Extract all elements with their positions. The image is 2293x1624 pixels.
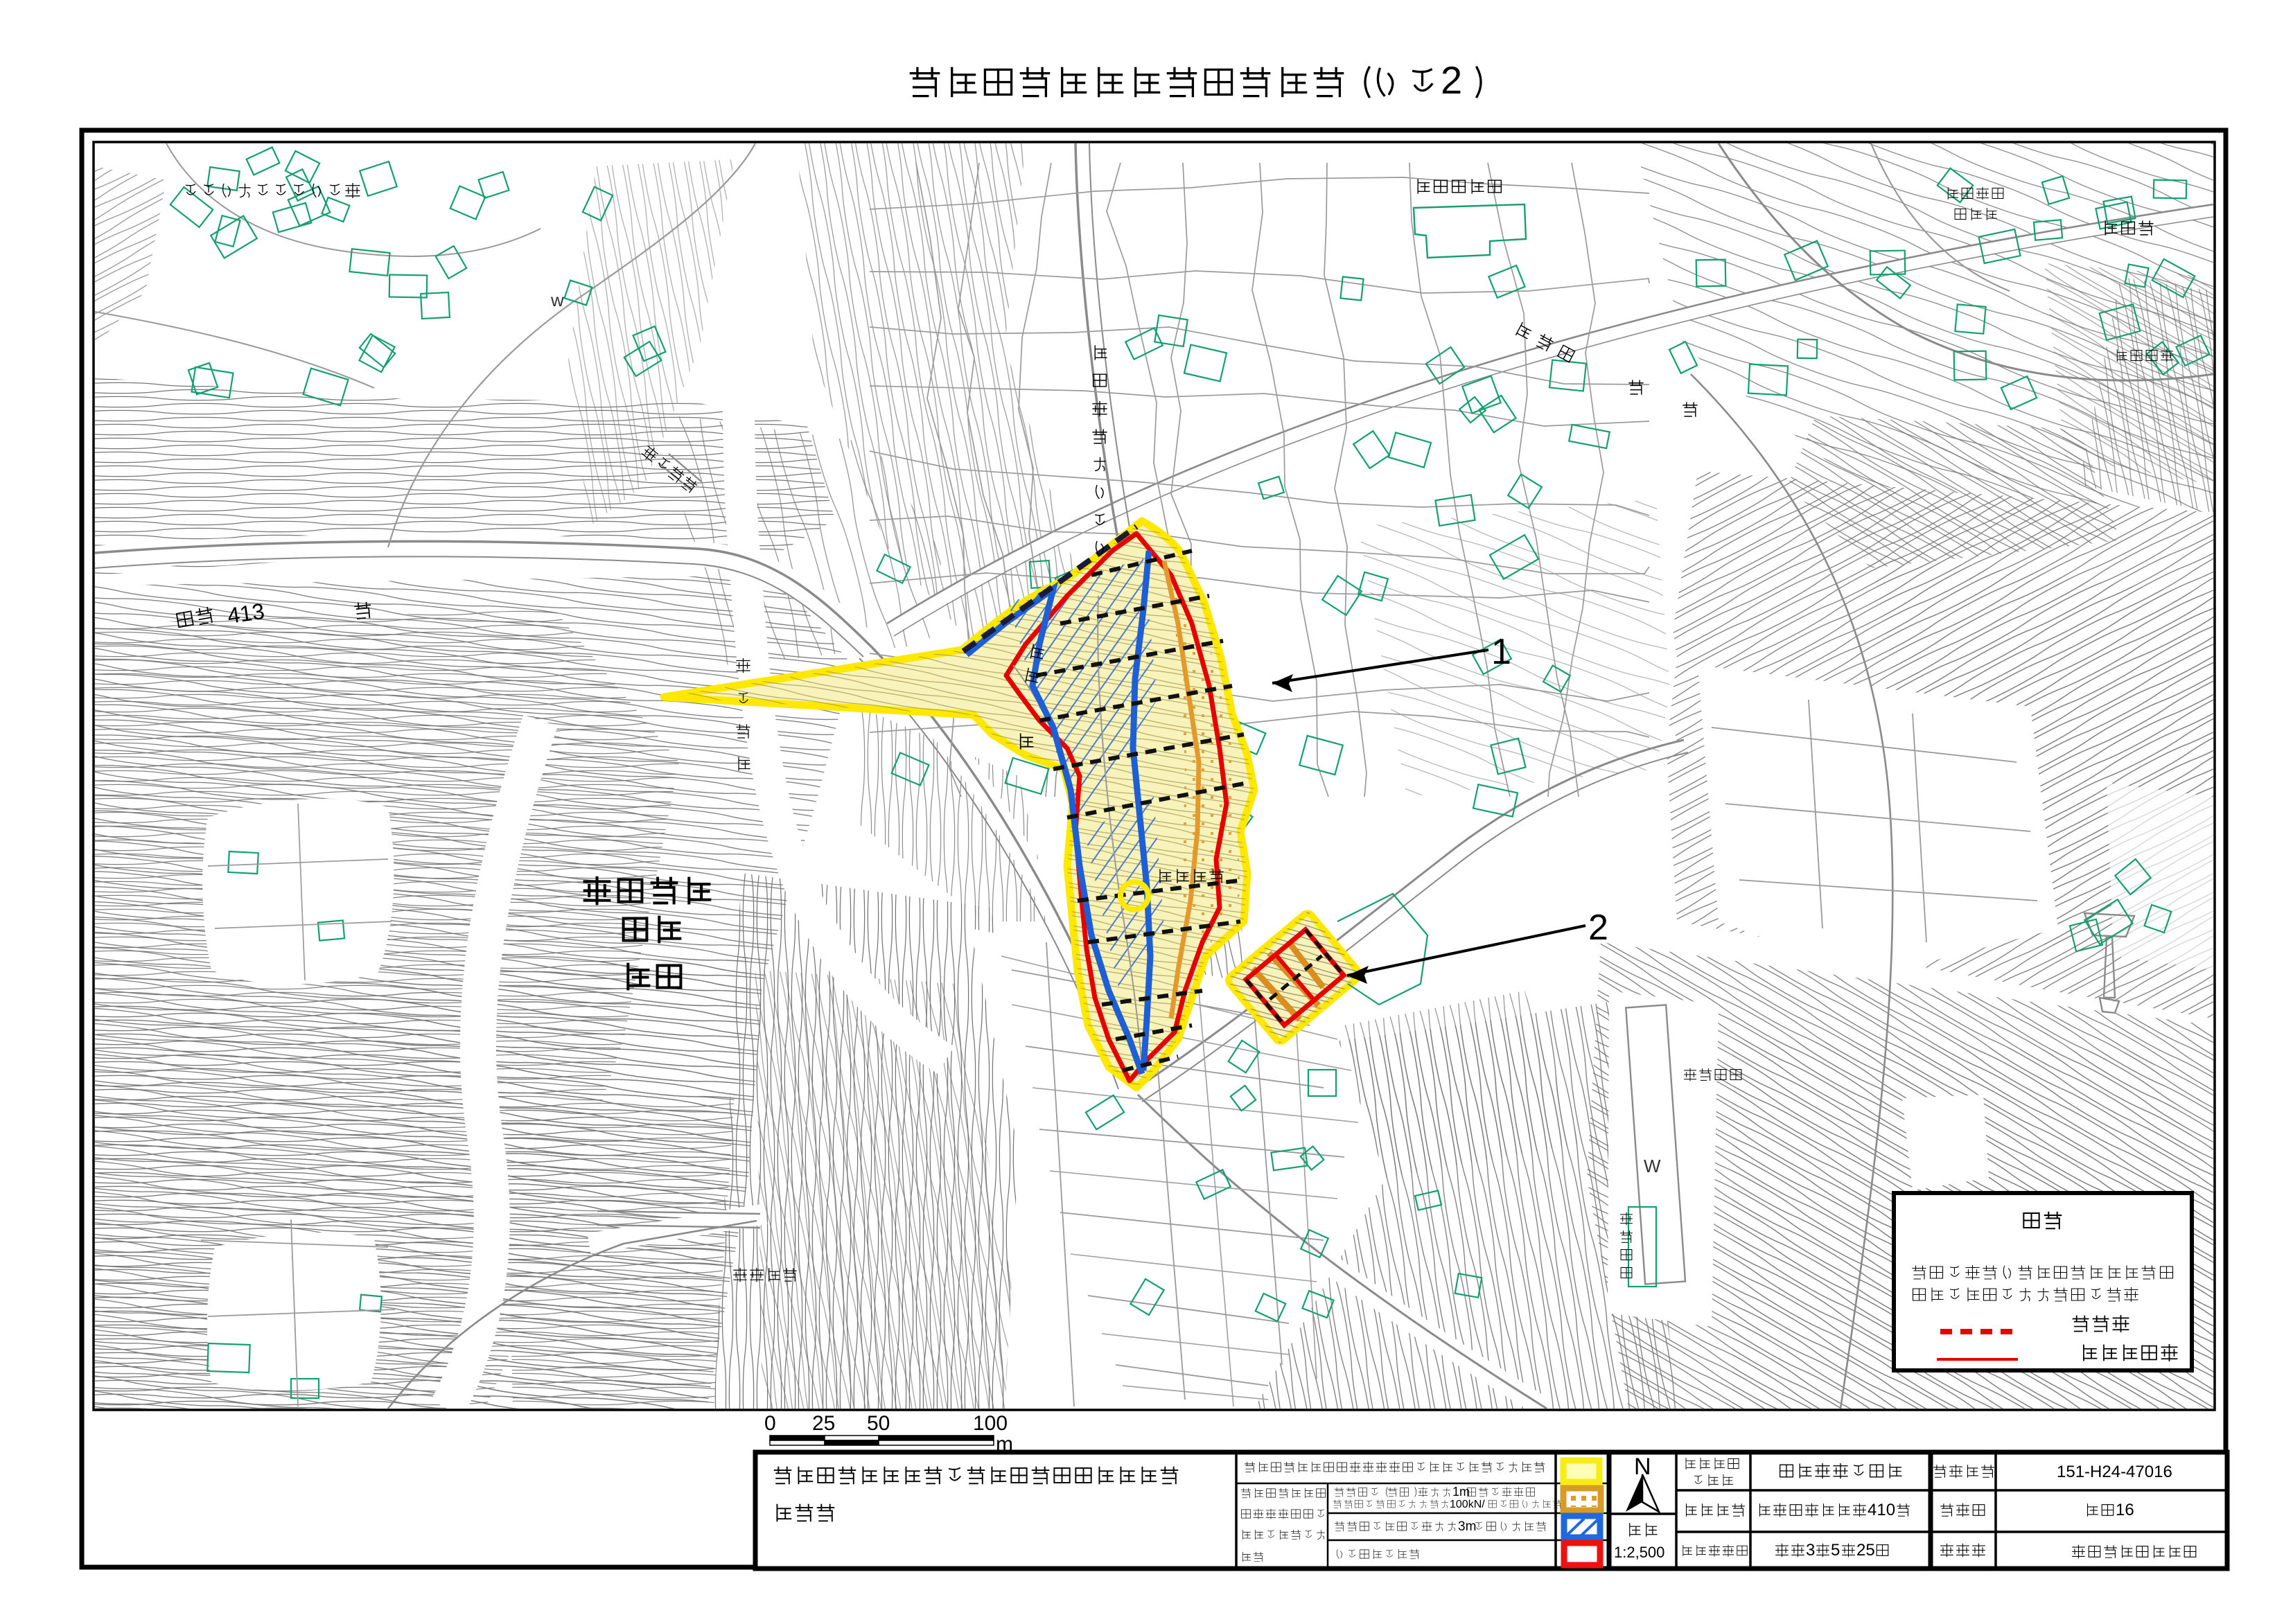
- svg-text:w: w: [550, 290, 564, 310]
- svg-text:0: 0: [764, 1412, 776, 1435]
- svg-text:2: 2: [1441, 58, 1462, 102]
- svg-text:100: 100: [973, 1412, 1008, 1435]
- svg-text:2: 2: [1588, 908, 1608, 948]
- svg-text:3: 3: [1806, 1541, 1815, 1560]
- svg-text:25: 25: [1856, 1541, 1875, 1560]
- svg-text:413: 413: [226, 599, 266, 628]
- svg-text:100kN/: 100kN/: [1450, 1499, 1485, 1510]
- svg-text:16: 16: [2116, 1501, 2134, 1519]
- svg-text:5: 5: [1831, 1541, 1840, 1560]
- svg-text:410: 410: [1868, 1501, 1895, 1519]
- svg-text:W: W: [1644, 1156, 1661, 1176]
- svg-text:151-H24-47016: 151-H24-47016: [2057, 1463, 2172, 1481]
- svg-text:1:2,500: 1:2,500: [1614, 1544, 1664, 1561]
- svg-text:50: 50: [867, 1412, 890, 1435]
- svg-text:25: 25: [812, 1412, 835, 1435]
- svg-text:3m: 3m: [1458, 1519, 1476, 1534]
- svg-text:1: 1: [1491, 632, 1511, 672]
